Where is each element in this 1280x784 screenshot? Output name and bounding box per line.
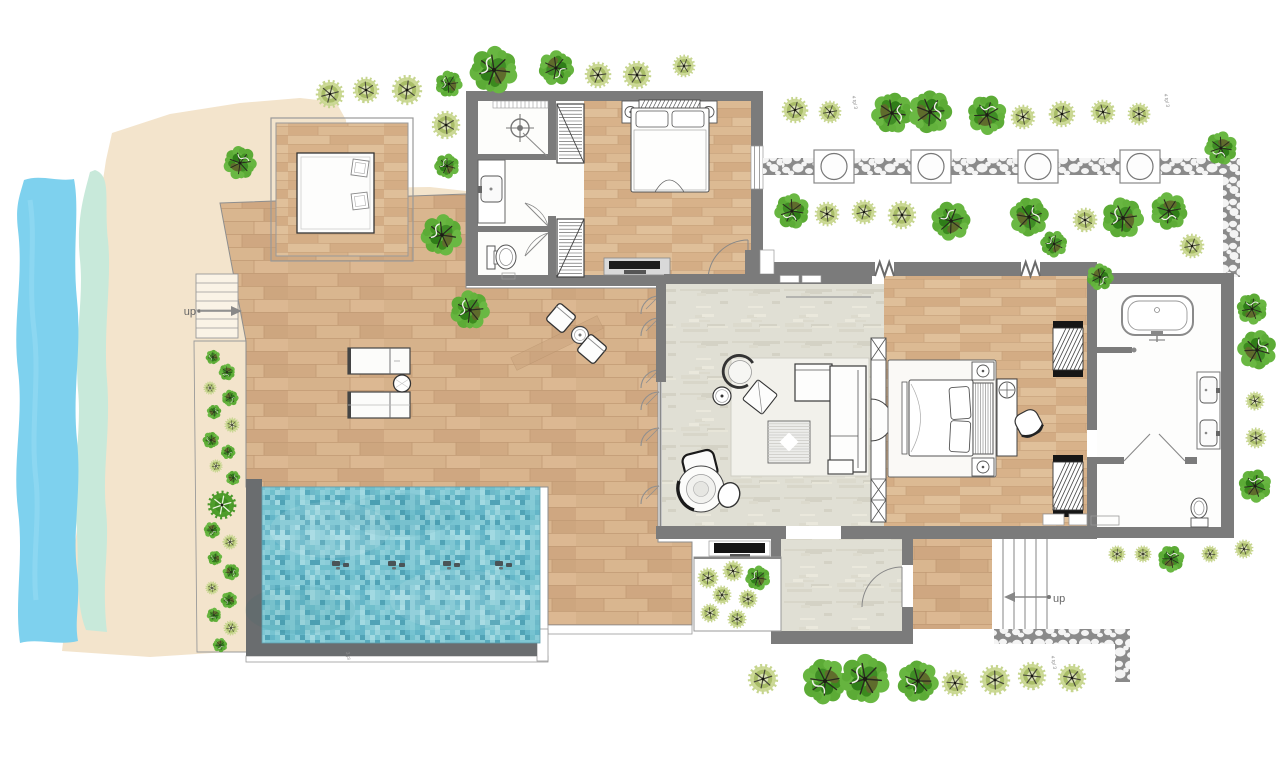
svg-text:4 tpl 3: 4 tpl 3 — [1162, 93, 1170, 108]
svg-text:4 tpl 3: 4 tpl 3 — [850, 95, 858, 110]
svg-text:up: up — [1053, 593, 1065, 605]
svg-text:4 tpl 3: 4 tpl 3 — [1049, 655, 1057, 670]
svg-text:up: up — [184, 306, 196, 318]
